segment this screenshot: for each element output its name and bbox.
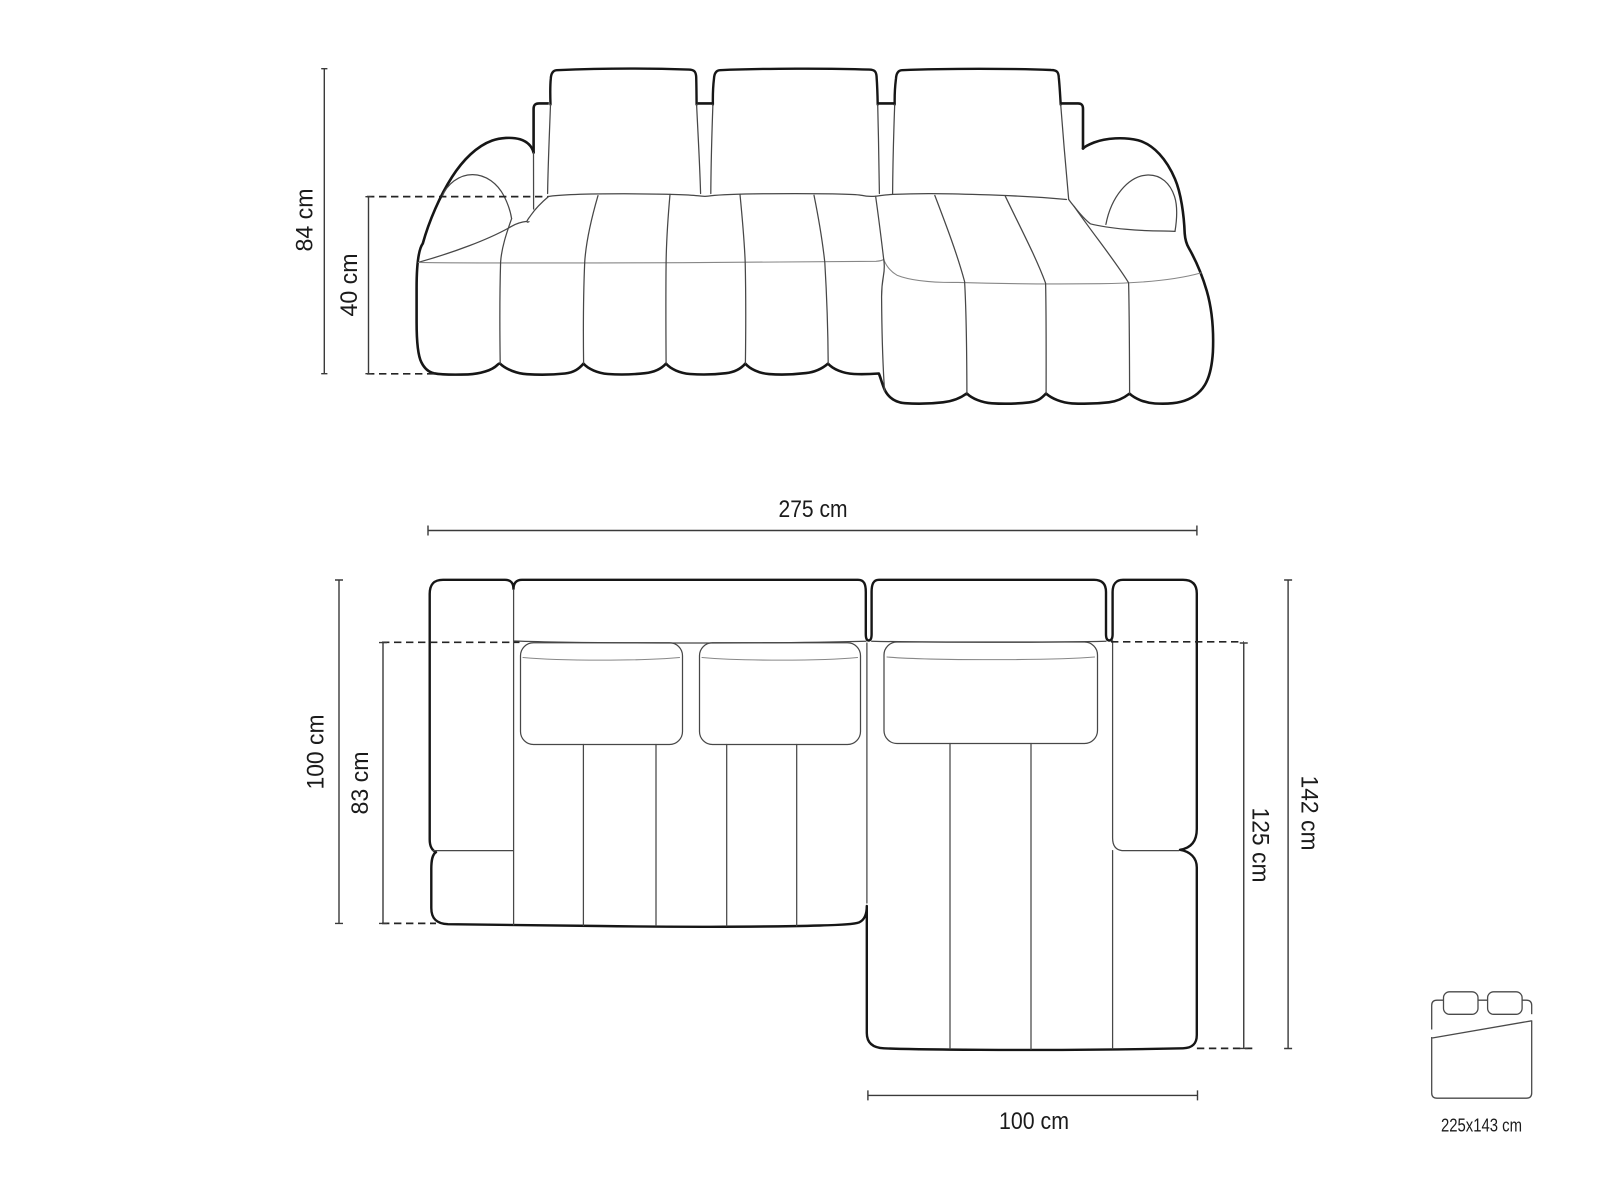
svg-text:100 cm: 100 cm bbox=[303, 715, 330, 790]
svg-text:275 cm: 275 cm bbox=[779, 496, 848, 523]
svg-text:225x143 cm: 225x143 cm bbox=[1441, 1115, 1522, 1136]
svg-text:125 cm: 125 cm bbox=[1247, 808, 1274, 883]
svg-text:84 cm: 84 cm bbox=[292, 189, 319, 252]
svg-text:40 cm: 40 cm bbox=[336, 254, 363, 317]
svg-text:100 cm: 100 cm bbox=[999, 1108, 1069, 1135]
svg-text:83 cm: 83 cm bbox=[347, 752, 374, 815]
svg-text:142 cm: 142 cm bbox=[1295, 776, 1322, 851]
